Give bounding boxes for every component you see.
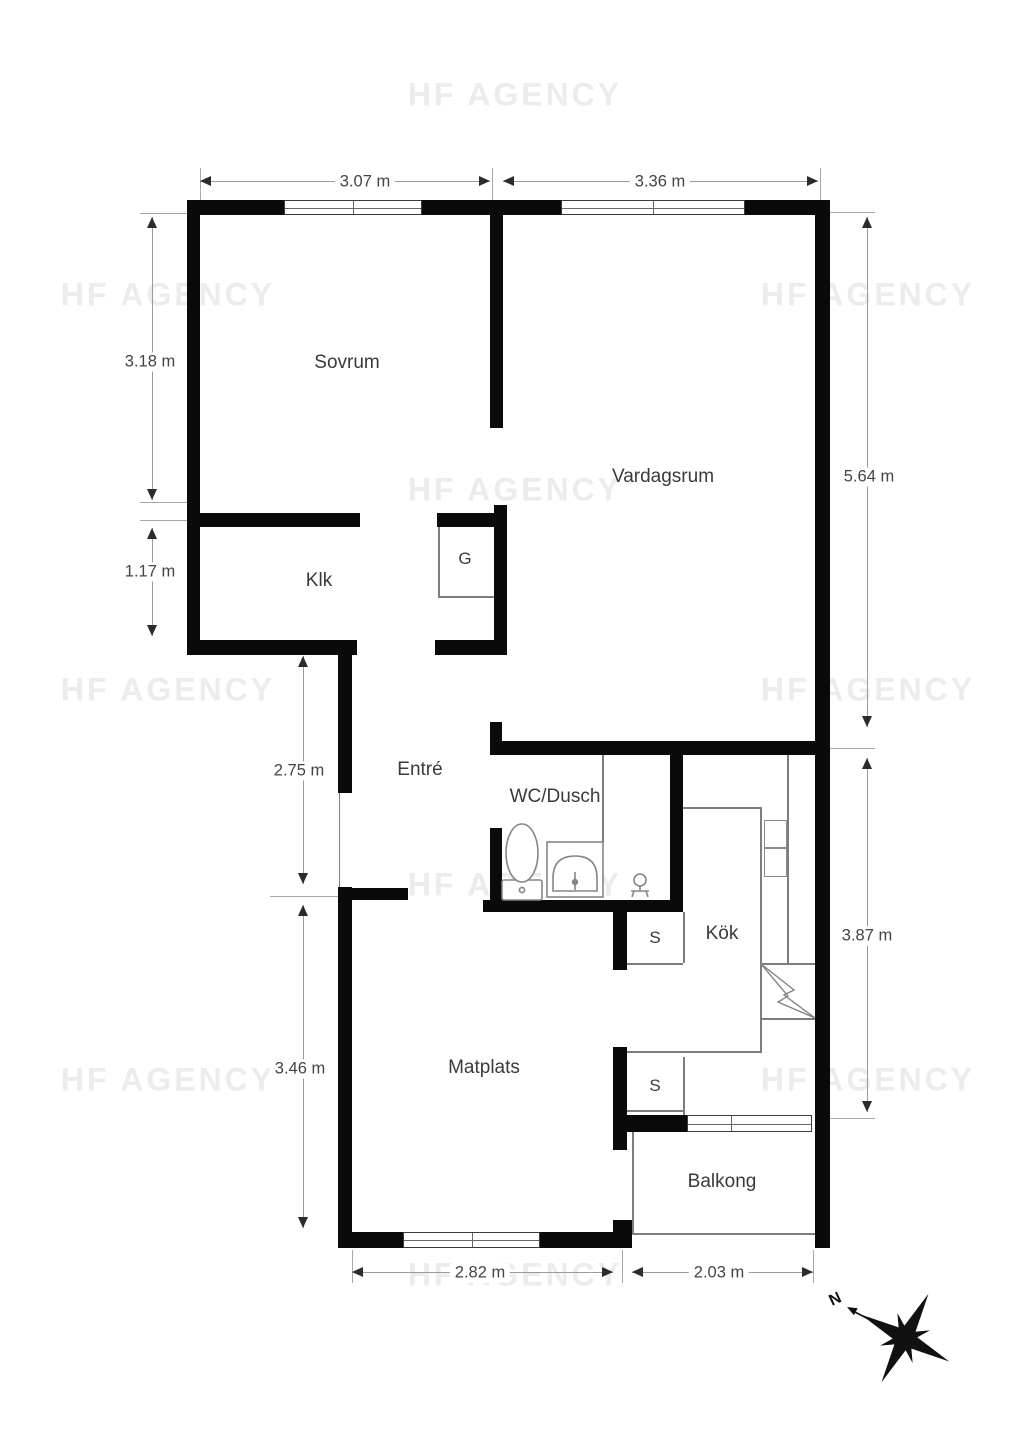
dimension-arrow [802,1267,813,1277]
dimension-label: 1.17 m [120,563,180,582]
window-line [353,201,354,214]
dimension-tick [813,1250,814,1283]
wall-segment [540,1232,617,1248]
room-label-entre: Entré [397,759,442,781]
dimension-arrow [862,217,872,228]
wall-segment [338,1232,403,1248]
closet-s-line [627,963,683,965]
watermark: HF AGENCY [408,77,622,114]
watermark: HF AGENCY [408,472,622,509]
room-label-sovrum: Sovrum [314,352,379,374]
wall-segment [670,741,683,912]
closet-s-line [627,1110,683,1112]
watermark: HF AGENCY [61,1062,275,1099]
window-line [731,1116,732,1131]
window [284,200,422,215]
dimension-tick [830,748,875,749]
watermark: HF AGENCY [761,1062,975,1099]
dimension-tick [830,212,875,213]
dimension-arrow [862,758,872,769]
closet-s-line [683,1057,685,1115]
balcony-door-window [687,1115,812,1132]
floor-drain-icon [631,874,649,897]
dimension-arrow [200,176,211,186]
dimension-arrow [807,176,818,186]
room-label-wc-dusch: WC/Dusch [510,786,601,808]
dimension-arrow [298,905,308,916]
dimension-arrow [602,1267,613,1277]
closet-label-s2: S [649,1076,660,1096]
dimension-tick [622,1250,623,1283]
dimension-label: 3.46 m [270,1060,330,1079]
balcony-railing-line [632,1233,815,1235]
dimension-label: 2.75 m [269,762,329,781]
dimension-line [152,528,153,636]
dimension-arrow [632,1267,643,1277]
window-line [472,1233,473,1247]
wall-segment [627,1115,687,1132]
dimension-label: 5.64 m [839,468,899,487]
wall-segment [490,215,503,428]
dimension-arrow [862,1101,872,1112]
wall-segment [187,200,284,215]
watermark: HF AGENCY [61,277,275,314]
room-label-klk: Klk [306,570,332,592]
watermark: HF AGENCY [408,1257,622,1294]
kitchen-counter-line [627,1051,760,1053]
window-line [688,1124,811,1125]
window [403,1232,540,1248]
room-label-vardagsrum: Vardagsrum [612,466,714,488]
kitchen-sink-icon [764,848,787,877]
compass-north-label: N [827,1289,845,1309]
toilet-icon [502,824,542,900]
dimension-tick [820,168,821,200]
window [561,200,745,215]
stove-icon [758,960,818,1022]
wall-segment [815,200,830,1248]
wall-segment [187,640,357,655]
wall-segment [422,200,561,215]
dimension-arrow [298,873,308,884]
wall-segment [200,513,360,527]
watermark: HF AGENCY [61,672,275,709]
wall-segment [338,640,352,793]
dimension-tick [830,1118,875,1119]
dimension-label: 2.03 m [689,1264,749,1283]
dimension-tick [492,168,493,200]
dimension-tick [140,213,187,214]
balcony-railing-line [632,1130,634,1235]
wall-segment [187,200,200,655]
wall-segment [338,887,352,1247]
wall-segment [494,505,507,655]
dimension-tick [270,896,338,897]
closet-g-line [438,596,495,598]
kitchen-sink-icon [764,820,787,848]
room-label-matplats: Matplats [448,1057,520,1079]
closet-label-g: G [458,549,471,569]
dimension-arrow [147,528,157,539]
sink-icon [547,842,603,897]
closet-g-line [438,527,440,596]
kitchen-cabinet-line [787,755,789,963]
dimension-arrow [298,656,308,667]
dimension-arrow [147,489,157,500]
dimension-arrow [147,625,157,636]
wall-segment [613,912,627,970]
dimension-label: 2.82 m [450,1264,510,1283]
wall-segment [613,1047,627,1150]
kitchen-counter-line [683,807,760,809]
dimension-arrow [352,1267,363,1277]
wall-segment [490,741,815,755]
watermark: HF AGENCY [761,672,975,709]
wall-segment [437,513,494,527]
dimension-label: 3.07 m [335,173,395,192]
dimension-arrow [479,176,490,186]
room-label-kok: Kök [706,923,739,945]
dimension-label: 3.18 m [120,353,180,372]
dimension-label: 3.87 m [837,927,897,946]
closet-label-s1: S [649,928,660,948]
room-label-balkong: Balkong [688,1171,757,1193]
dimension-arrow [862,716,872,727]
wall-segment [352,888,408,900]
dimension-arrow [147,217,157,228]
window-line [653,201,654,214]
watermark: HF AGENCY [761,277,975,314]
wall-segment [435,640,502,655]
entry-door-threshold-line [339,793,340,887]
dimension-arrow [503,176,514,186]
compass-rose-icon: N [815,1248,1005,1433]
bathroom-fixtures [495,820,660,905]
dimension-arrow [298,1217,308,1228]
dimension-label: 3.36 m [630,173,690,192]
floorplan: HF AGENCY HF AGENCY HF AGENCY HF AGENCY … [0,0,1024,1452]
closet-s-line [683,912,685,963]
